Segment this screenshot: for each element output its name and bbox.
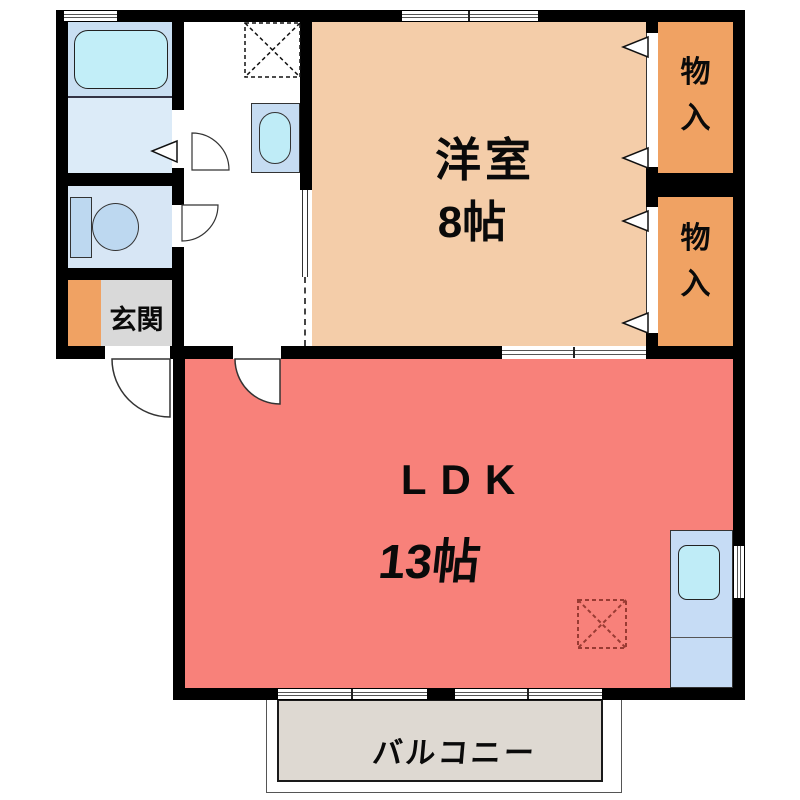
- sliding-partition-tick: [573, 347, 575, 358]
- toilet-tank: [70, 197, 92, 258]
- closet-door-bottom: [646, 207, 658, 333]
- opening-washroom-door: [172, 110, 184, 168]
- wall-top: [56, 10, 745, 22]
- window-sash-tick: [527, 689, 529, 699]
- floor-plan: 洋室 8帖 LDK 13帖 玄関 物 入 物 入 バルコニー: [0, 0, 800, 800]
- bathtub: [74, 30, 168, 89]
- window-sash-tick: [468, 11, 470, 21]
- storage-top-char-1: 物: [658, 50, 733, 96]
- storage-bottom-char-1: 物: [658, 216, 733, 262]
- wall-hallway-western: [300, 22, 312, 190]
- balcony-label: バルコニー: [328, 728, 582, 772]
- room-washroom: [68, 98, 172, 173]
- kitchen-sink: [678, 545, 720, 600]
- storage-bottom-label: 物 入: [658, 216, 733, 308]
- window-glass-line: [64, 17, 117, 18]
- room-hallway: [184, 22, 300, 346]
- opening-ldk-door: [233, 346, 281, 359]
- window-glass-line: [740, 546, 741, 598]
- genkan-label: 玄関: [101, 298, 172, 337]
- storage-bottom-char-2: 入: [658, 262, 733, 308]
- closet-door-top: [646, 33, 658, 167]
- window-glass-line: [64, 14, 117, 15]
- storage-top-char-2: 入: [658, 96, 733, 142]
- wall-storage-divider: [646, 173, 733, 197]
- genkan-step: [68, 280, 101, 346]
- window-glass-line: [737, 546, 738, 598]
- western-room-label: 洋室: [370, 124, 600, 190]
- opening-toilet-door: [172, 205, 184, 247]
- ldk-label: LDK: [345, 456, 585, 504]
- window-bathroom-top: [64, 11, 117, 21]
- front-door-swing: [112, 359, 170, 417]
- window-sash-tick: [351, 689, 353, 699]
- window-glass-line: [402, 17, 538, 18]
- window-glass-line: [402, 14, 538, 15]
- washbasin-bowl: [259, 112, 291, 164]
- wall-washroom-toilet: [56, 173, 184, 186]
- opening-front-door: [105, 346, 170, 359]
- kitchen-counter-divider: [671, 637, 732, 638]
- ldk-size: 13帖: [326, 522, 533, 592]
- storage-top-label: 物 入: [658, 50, 733, 142]
- sliding-door-western-panel: [302, 190, 308, 277]
- sliding-door-western-dash: [304, 277, 308, 346]
- toilet-bowl: [92, 203, 139, 251]
- window-western-top: [402, 11, 538, 21]
- wall-ldk-left: [173, 346, 185, 700]
- wall-toilet-genkan: [56, 268, 184, 280]
- western-room-size: 8帖: [372, 186, 572, 250]
- window-kitchen-right: [734, 546, 744, 598]
